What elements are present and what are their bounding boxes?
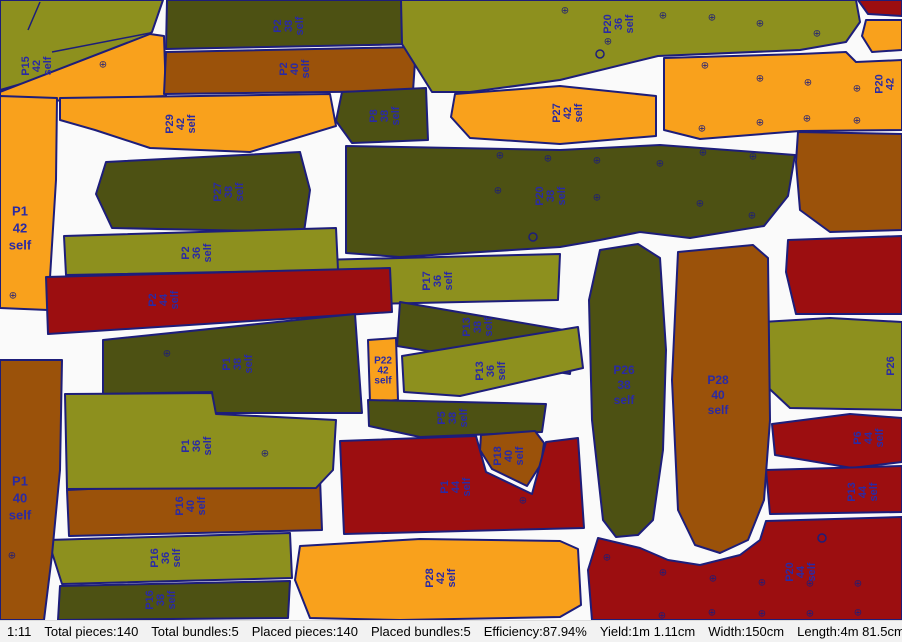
pattern-piece-P8-38[interactable]: P838self <box>336 88 428 143</box>
pattern-piece-P16-38[interactable]: P1638self <box>58 581 290 620</box>
pattern-piece-P27-42[interactable]: P2742self <box>451 86 656 144</box>
drill-hole-icon: ⊕ <box>758 578 766 589</box>
status-placed-bundles: Placed bundles:5 <box>371 624 471 639</box>
drill-hole-icon: ⊕ <box>99 60 107 71</box>
pattern-piece-p44-wedge-tr[interactable] <box>858 0 902 16</box>
pattern-piece-P20-42[interactable]: ⊕⊕⊕⊕⊕⊕⊕⊕P2042 <box>664 52 902 139</box>
drill-hole-icon: ⊕ <box>756 19 764 30</box>
pattern-piece-p40-right[interactable] <box>796 132 902 232</box>
pattern-piece-p42-wedge-tr[interactable] <box>862 20 902 52</box>
drill-hole-icon: ⊕ <box>806 609 814 620</box>
drill-hole-icon: ⊕ <box>494 186 502 197</box>
drill-hole-icon: ⊕ <box>758 609 766 620</box>
pattern-piece-P28-42[interactable]: P2842self <box>295 539 581 620</box>
drill-hole-icon: ⊕ <box>604 37 612 48</box>
drill-hole-icon: ⊕ <box>261 449 269 460</box>
pattern-piece-P20-38[interactable]: ⊕⊕⊕⊕⊕⊕⊕⊕⊕⊕P2038self <box>346 145 795 257</box>
drill-hole-icon: ⊕ <box>496 151 504 162</box>
pattern-piece-P27-38[interactable]: P2738self <box>96 152 310 232</box>
pattern-piece-P2-40[interactable]: P240self <box>164 47 416 94</box>
drill-hole-icon: ⊕ <box>561 6 569 17</box>
pattern-piece-P26-38[interactable]: P2638self <box>589 244 666 537</box>
pattern-piece-P2-38[interactable]: P238self <box>166 0 420 49</box>
drill-hole-icon: ⊕ <box>699 148 707 159</box>
pattern-piece-P28-40[interactable]: P2840self <box>672 245 770 553</box>
drill-hole-icon: ⊕ <box>749 152 757 163</box>
drill-hole-icon: ⊕ <box>701 61 709 72</box>
drill-hole-icon: ⊕ <box>709 574 717 585</box>
status-bar: 1:11 Total pieces:140 Total bundles:5 Pl… <box>0 620 902 642</box>
drill-hole-icon: ⊕ <box>756 118 764 129</box>
drill-hole-icon: ⊕ <box>708 608 716 619</box>
marker-canvas: ⊕P1542selfP238selfP240selfP2942self⊕P142… <box>0 0 902 620</box>
drill-hole-icon: ⊕ <box>659 11 667 22</box>
pattern-piece-P16-36[interactable]: P1636self <box>48 533 292 584</box>
drill-hole-icon: ⊕ <box>658 611 666 621</box>
marker-canvas-area: ⊕P1542selfP238selfP240selfP2942self⊕P142… <box>0 0 902 620</box>
pattern-piece-P1-40[interactable]: ⊕P140self <box>0 360 62 620</box>
status-scale: 1:11 <box>7 624 31 639</box>
drill-hole-icon: ⊕ <box>748 211 756 222</box>
pattern-piece-p44-right[interactable] <box>786 236 902 314</box>
drill-hole-icon: ⊕ <box>756 74 764 85</box>
drill-hole-icon: ⊕ <box>544 154 552 165</box>
status-placed-pieces: Placed pieces:140 <box>252 624 358 639</box>
drill-hole-icon: ⊕ <box>698 124 706 135</box>
piece-label: P26 <box>885 356 897 376</box>
status-width: Width:150cm <box>708 624 784 639</box>
drill-hole-icon: ⊕ <box>854 608 862 619</box>
drill-hole-icon: ⊕ <box>708 13 716 24</box>
drill-hole-icon: ⊕ <box>853 84 861 95</box>
drill-hole-icon: ⊕ <box>659 568 667 579</box>
drill-hole-icon: ⊕ <box>803 114 811 125</box>
status-efficiency: Efficiency:87.94% <box>484 624 587 639</box>
pattern-piece-P29-42[interactable]: P2942self <box>60 94 336 152</box>
drill-hole-icon: ⊕ <box>519 496 527 507</box>
drill-hole-icon: ⊕ <box>593 193 601 204</box>
drill-hole-icon: ⊕ <box>603 553 611 564</box>
pattern-piece-P26-36[interactable]: P26 <box>754 318 902 410</box>
status-total-bundles: Total bundles:5 <box>151 624 238 639</box>
pattern-piece-P13-44[interactable]: P1344self <box>766 466 902 514</box>
drill-hole-icon: ⊕ <box>696 199 704 210</box>
status-length: Length:4m 81.5cm <box>797 624 902 639</box>
drill-hole-icon: ⊕ <box>813 29 821 40</box>
pattern-piece-P6-44[interactable]: P644self <box>772 414 902 468</box>
status-yield: Yield:1m 1.11cm <box>600 624 695 639</box>
drill-hole-icon: ⊕ <box>853 116 861 127</box>
drill-hole-icon: ⊕ <box>854 579 862 590</box>
pattern-piece-P2-36[interactable]: P236self <box>64 228 338 275</box>
drill-hole-icon: ⊕ <box>163 349 171 360</box>
drill-hole-icon: ⊕ <box>9 291 17 302</box>
drill-hole-icon: ⊕ <box>8 551 16 562</box>
drill-hole-icon: ⊕ <box>593 156 601 167</box>
pattern-piece-P22-42[interactable]: P2242self <box>368 338 398 402</box>
drill-hole-icon: ⊕ <box>656 159 664 170</box>
pattern-piece-P1-44[interactable]: ⊕P144self <box>340 436 584 534</box>
drill-hole-icon: ⊕ <box>804 78 812 89</box>
status-total-pieces: Total pieces:140 <box>44 624 138 639</box>
